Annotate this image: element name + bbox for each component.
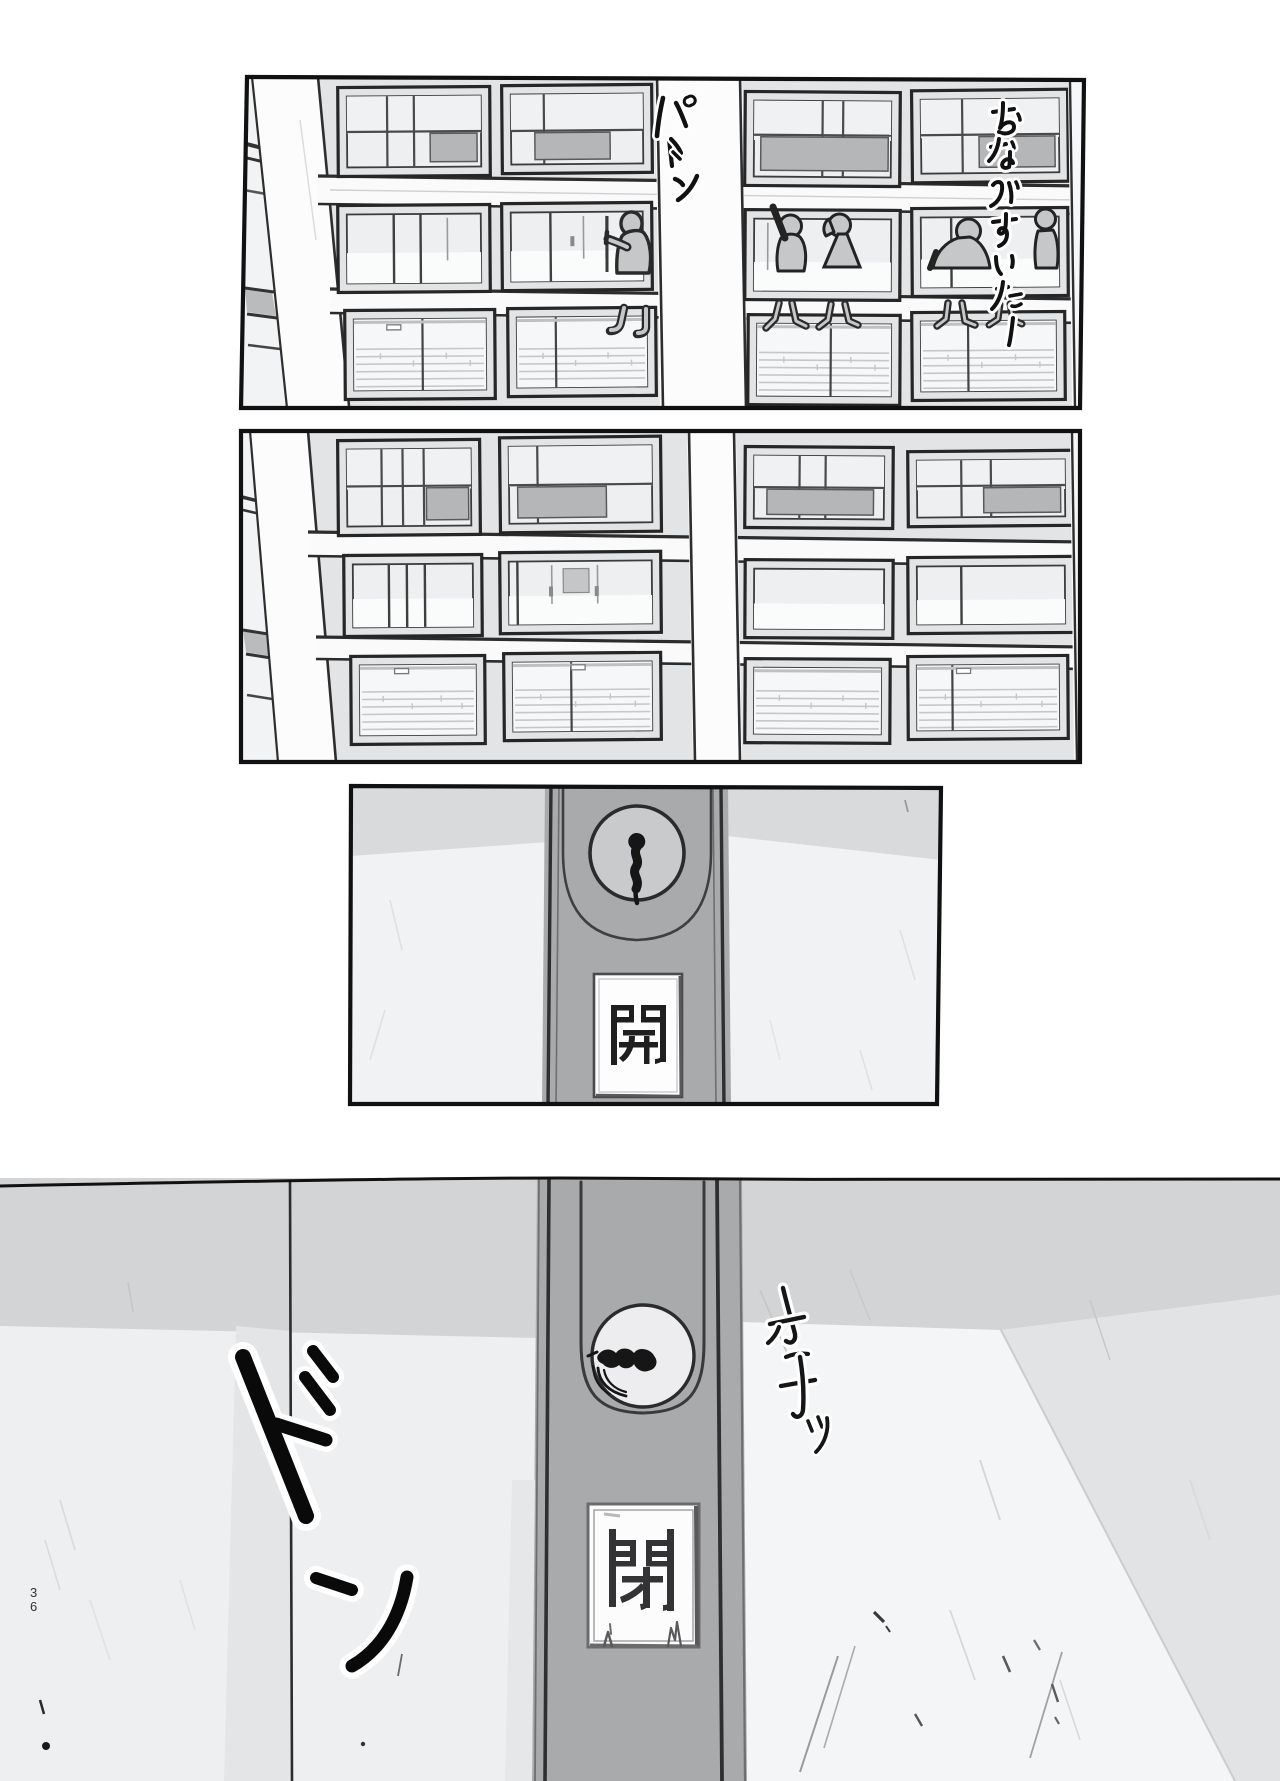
svg-text:3: 3	[30, 1585, 37, 1600]
svg-text:6: 6	[30, 1599, 37, 1614]
